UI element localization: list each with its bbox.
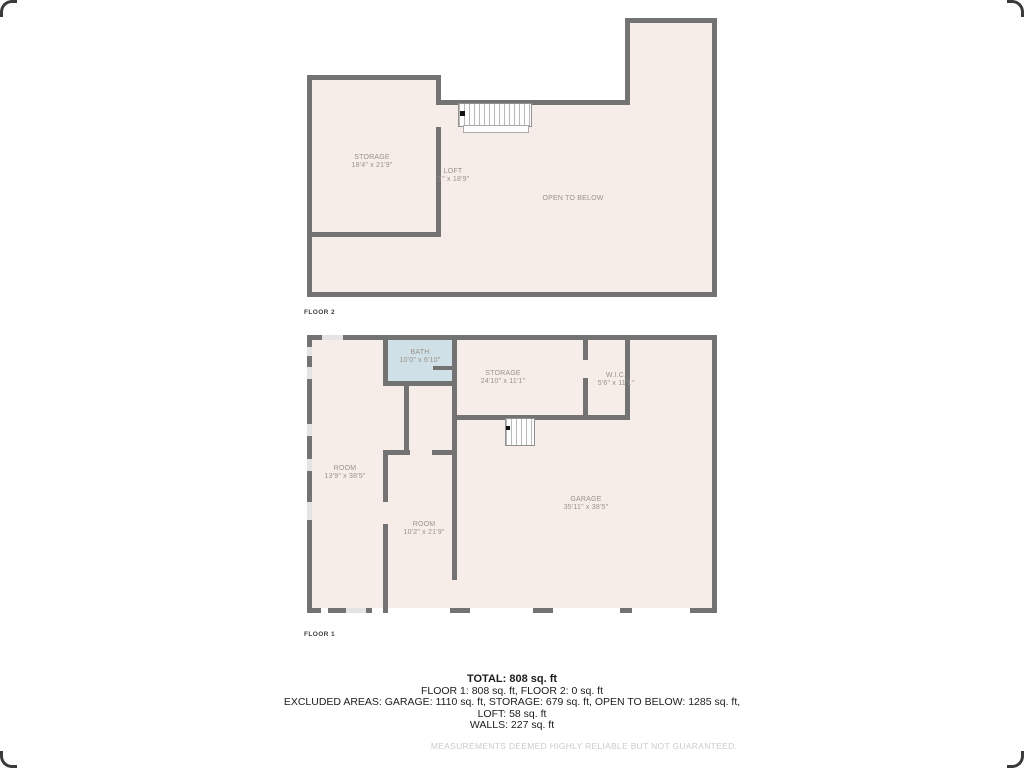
room-name: ROOM (404, 521, 445, 529)
wall (307, 335, 717, 340)
room-name: W.I.C. (598, 372, 634, 380)
floor1-room-left-label: ROOM 13'9" x 38'5" (325, 465, 366, 481)
wall (383, 335, 388, 386)
wall (690, 608, 717, 613)
corner-frame-mark (0, 0, 17, 17)
floor1-wic-label: W.I.C. 5'6" x 11'1" (598, 372, 634, 388)
window-marker (307, 424, 312, 436)
wall (307, 608, 321, 613)
window-marker (307, 347, 312, 356)
summary-total: TOTAL: 808 sq. ft (0, 674, 1024, 686)
window-marker (307, 367, 312, 379)
staircase-icon (505, 418, 535, 446)
room-name: GARAGE (564, 496, 609, 504)
wall (383, 450, 388, 502)
floor1-plan: BATH 10'0" x 6'10" STORAGE 24'10" x 11'1… (0, 0, 1024, 768)
floor1-storage-label: STORAGE 24'10" x 11'1" (481, 370, 526, 386)
floor1-room-center-label: ROOM 10'2" x 21'9" (404, 521, 445, 537)
wall (583, 378, 588, 420)
floor1-tag: FLOOR 1 (304, 631, 335, 638)
room-dims: 10'2" x 21'9" (404, 529, 445, 537)
window-marker (307, 459, 312, 471)
window-marker (322, 335, 343, 340)
floor1-garage-label: GARAGE 35'11" x 38'5" (564, 496, 609, 512)
room-dims: 35'11" x 38'5" (564, 504, 609, 512)
wall (404, 386, 409, 455)
wall (450, 608, 470, 613)
wall (452, 415, 630, 420)
wall (383, 381, 457, 386)
wall (383, 524, 388, 613)
room-dims: 24'10" x 11'1" (481, 378, 526, 386)
room-name: ROOM (325, 465, 366, 473)
wall (620, 608, 632, 613)
summary-walls: WALLS: 227 sq. ft (0, 720, 1024, 732)
room-name: BATH (400, 349, 441, 357)
wall (452, 335, 457, 580)
measurement-disclaimer: MEASUREMENTS DEEMED HIGHLY RELIABLE BUT … (431, 741, 737, 751)
room-dims: 13'9" x 38'5" (325, 473, 366, 481)
area-summary: TOTAL: 808 sq. ft FLOOR 1: 808 sq. ft, F… (0, 674, 1024, 732)
wall (533, 608, 553, 613)
window-marker (346, 608, 366, 613)
room-dims: 5'6" x 11'1" (598, 380, 634, 388)
wall (583, 335, 588, 360)
stair-direction-dot (506, 426, 510, 430)
room-name: STORAGE (481, 370, 526, 378)
wall (712, 335, 717, 613)
room-dims: 10'0" x 6'10" (400, 357, 441, 365)
window-marker (307, 502, 312, 520)
floor1-bath-label: BATH 10'0" x 6'10" (400, 349, 441, 365)
